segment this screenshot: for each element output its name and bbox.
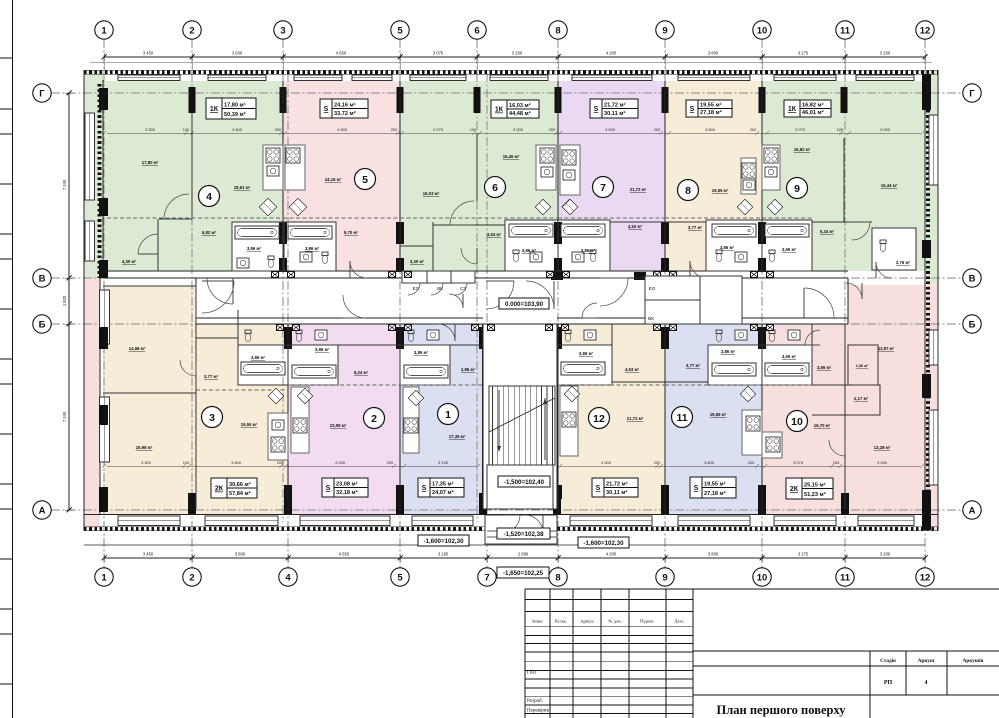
svg-text:3 075: 3 075 [433, 51, 444, 56]
svg-text:11: 11 [840, 572, 851, 583]
svg-text:3,86 м²: 3,86 м² [581, 248, 596, 253]
svg-text:4,64 м²: 4,64 м² [487, 232, 502, 237]
svg-text:3 275: 3 275 [798, 51, 809, 56]
svg-text:3 800: 3 800 [235, 552, 246, 557]
svg-text:3 275: 3 275 [798, 552, 809, 557]
svg-text:3,86 м²: 3,86 м² [579, 351, 594, 356]
svg-text:50,39 м²: 50,39 м² [224, 111, 246, 118]
svg-text:3: 3 [280, 25, 285, 36]
svg-text:9: 9 [794, 183, 800, 195]
svg-text:1 820: 1 820 [62, 295, 67, 306]
svg-text:2: 2 [189, 572, 194, 583]
svg-text:3 600: 3 600 [231, 460, 242, 465]
svg-text:S: S [594, 106, 599, 113]
svg-text:3,30 м²: 3,30 м² [410, 259, 425, 264]
svg-text:8: 8 [555, 572, 560, 583]
svg-text:Г: Г [969, 88, 975, 99]
svg-text:В: В [39, 273, 46, 284]
svg-text:23,08 м²: 23,08 м² [330, 423, 347, 428]
svg-text:200: 200 [391, 127, 398, 132]
svg-text:2 975: 2 975 [433, 127, 443, 132]
svg-text:1К: 1К [210, 106, 219, 113]
svg-text:3 300: 3 300 [141, 460, 152, 465]
svg-text:100: 100 [183, 127, 190, 132]
svg-text:21,72 м²: 21,72 м² [606, 481, 628, 488]
svg-text:11,87 м²: 11,87 м² [878, 346, 895, 351]
svg-text:11: 11 [676, 412, 687, 424]
svg-text:6: 6 [474, 25, 479, 36]
svg-text:3,77 м²: 3,77 м² [686, 363, 701, 368]
svg-text:200: 200 [275, 127, 282, 132]
svg-text:200: 200 [654, 460, 661, 465]
svg-text:2: 2 [189, 25, 194, 36]
svg-text:3: 3 [209, 412, 215, 424]
svg-text:S: S [324, 106, 329, 113]
svg-text:Аркуш: Аркуш [918, 658, 935, 664]
svg-text:16,45 м²: 16,45 м² [503, 154, 520, 159]
svg-text:12: 12 [593, 413, 605, 425]
svg-text:13,28 м²: 13,28 м² [874, 445, 891, 450]
svg-text:3,86 м²: 3,86 м² [414, 350, 429, 355]
svg-text:3,65 м²: 3,65 м² [782, 354, 797, 359]
svg-text:СЗ: СЗ [460, 286, 466, 291]
svg-text:200: 200 [750, 127, 757, 132]
svg-text:12: 12 [920, 25, 931, 36]
svg-text:Стадія: Стадія [880, 658, 896, 664]
svg-text:19,55 м²: 19,55 м² [712, 188, 729, 193]
svg-text:2,17 м²: 2,17 м² [854, 396, 869, 401]
svg-text:3 075: 3 075 [793, 460, 803, 465]
svg-text:17,80 м²: 17,80 м² [142, 160, 159, 165]
svg-text:16,82 м²: 16,82 м² [794, 147, 811, 152]
svg-text:2 880: 2 880 [518, 552, 529, 557]
svg-text:ВК: ВК [648, 316, 654, 321]
svg-text:24,07 м²: 24,07 м² [432, 489, 454, 496]
svg-text:7: 7 [600, 182, 606, 194]
svg-text:9: 9 [662, 25, 667, 36]
svg-text:21,72 м²: 21,72 м² [627, 416, 644, 421]
svg-text:10: 10 [757, 25, 768, 36]
svg-text:3 075: 3 075 [795, 127, 805, 132]
svg-text:5: 5 [362, 174, 368, 186]
svg-text:10: 10 [791, 416, 803, 428]
svg-text:57,84 м²: 57,84 м² [229, 490, 251, 497]
svg-text:1К: 1К [788, 106, 797, 113]
svg-text:4 000: 4 000 [605, 127, 616, 132]
svg-text:3 050: 3 050 [880, 127, 891, 132]
svg-text:S: S [596, 485, 601, 492]
svg-text:3 800: 3 800 [708, 552, 719, 557]
svg-text:2,86 м²: 2,86 м² [461, 367, 476, 372]
svg-text:-1,500=102,40: -1,500=102,40 [504, 479, 545, 486]
svg-text:27,18 м²: 27,18 м² [704, 490, 726, 497]
svg-text:3 000: 3 000 [513, 127, 524, 132]
svg-text:Г: Г [39, 88, 45, 99]
svg-text:14,68 м²: 14,68 м² [129, 346, 146, 351]
svg-text:Аркуш: Аркуш [580, 619, 594, 624]
svg-text:Перевірив: Перевірив [527, 709, 549, 714]
svg-text:Розроб.: Розроб. [527, 699, 543, 704]
svg-text:3 195: 3 195 [438, 552, 449, 557]
svg-text:3 450: 3 450 [143, 51, 154, 56]
svg-text:4 200: 4 200 [606, 552, 617, 557]
svg-text:3,86 м²: 3,86 м² [247, 246, 262, 251]
svg-text:24,16 м²: 24,16 м² [325, 177, 342, 182]
svg-text:200: 200 [748, 460, 755, 465]
svg-text:200: 200 [549, 127, 556, 132]
svg-text:15,98 м²: 15,98 м² [136, 445, 153, 450]
svg-text:4 650: 4 650 [336, 51, 347, 56]
svg-text:9: 9 [662, 572, 667, 583]
svg-text:30,66 м²: 30,66 м² [229, 481, 251, 488]
svg-text:ЕО: ЕО [649, 286, 656, 291]
svg-text:4 650: 4 650 [339, 552, 350, 557]
svg-text:Аркушів: Аркушів [963, 658, 984, 664]
svg-text:-1,600=102,30: -1,600=102,30 [583, 540, 624, 547]
svg-text:4: 4 [285, 572, 291, 583]
svg-text:24,16 м²: 24,16 м² [334, 102, 356, 109]
svg-text:S: S [694, 485, 699, 492]
svg-text:200: 200 [654, 127, 661, 132]
svg-text:16,03 м²: 16,03 м² [423, 191, 440, 196]
svg-text:21,72 м²: 21,72 м² [604, 102, 626, 109]
svg-text:4,53 м²: 4,53 м² [628, 224, 643, 229]
svg-text:3,76 м²: 3,76 м² [896, 260, 911, 265]
svg-text:-1,650=102,25: -1,650=102,25 [503, 570, 544, 577]
svg-text:Б: Б [39, 319, 46, 330]
svg-text:11: 11 [840, 25, 851, 36]
svg-text:ВК: ВК [437, 286, 443, 291]
svg-text:16,03 м²: 16,03 м² [509, 102, 531, 109]
svg-text:30,11 м²: 30,11 м² [604, 110, 625, 117]
svg-text:8: 8 [685, 185, 691, 197]
svg-text:№ док.: № док. [608, 619, 622, 624]
svg-text:3,56 м²: 3,56 м² [817, 365, 832, 370]
svg-text:46,01 м²: 46,01 м² [802, 109, 824, 116]
svg-text:8: 8 [555, 25, 560, 36]
svg-text:4 000: 4 000 [601, 460, 612, 465]
svg-text:44,48 м²: 44,48 м² [509, 110, 531, 117]
svg-text:5,70 м²: 5,70 м² [344, 230, 359, 235]
svg-text:7 340: 7 340 [62, 179, 67, 190]
svg-text:3,77 м²: 3,77 м² [204, 374, 219, 379]
svg-text:3 450: 3 450 [143, 552, 154, 557]
svg-text:А: А [969, 505, 976, 516]
svg-text:4 250: 4 250 [335, 460, 346, 465]
svg-text:3 600: 3 600 [232, 51, 243, 56]
svg-text:30,11 м²: 30,11 м² [606, 489, 627, 496]
svg-text:2К: 2К [790, 486, 799, 493]
svg-text:Зміна: Зміна [532, 619, 543, 624]
svg-text:Підпис: Підпис [640, 619, 654, 624]
svg-text:6: 6 [492, 182, 498, 194]
svg-text:1К: 1К [495, 107, 504, 114]
svg-text:S: S [422, 485, 427, 492]
svg-text:7: 7 [484, 572, 489, 583]
svg-text:3 200: 3 200 [512, 51, 523, 56]
svg-text:4: 4 [925, 680, 928, 686]
svg-text:3 200: 3 200 [880, 51, 891, 56]
svg-text:200: 200 [387, 460, 394, 465]
svg-text:19,55 м²: 19,55 м² [704, 481, 726, 488]
svg-text:4 200: 4 200 [606, 51, 617, 56]
svg-text:3,86 м²: 3,86 м² [251, 355, 266, 360]
svg-text:17,35 м²: 17,35 м² [432, 481, 454, 488]
svg-text:33,72 м²: 33,72 м² [334, 110, 356, 117]
svg-text:4 650: 4 650 [337, 127, 348, 132]
svg-text:51,23 м²: 51,23 м² [804, 491, 826, 498]
svg-text:5,82 м²: 5,82 м² [202, 230, 217, 235]
svg-text:ЕО: ЕО [413, 286, 420, 291]
svg-text:5,34 м²: 5,34 м² [820, 229, 835, 234]
svg-text:3,86 м²: 3,86 м² [315, 347, 330, 352]
svg-text:19,55 м²: 19,55 м² [700, 102, 722, 109]
svg-text:18,61 м²: 18,61 м² [234, 185, 251, 190]
svg-text:Б: Б [969, 319, 976, 330]
svg-text:32,18 м²: 32,18 м² [336, 489, 358, 496]
svg-text:16,44 м²: 16,44 м² [881, 183, 898, 188]
svg-text:3,65 м²: 3,65 м² [782, 247, 797, 252]
svg-text:12: 12 [920, 572, 931, 583]
svg-text:10: 10 [757, 572, 768, 583]
svg-text:7 340: 7 340 [62, 411, 67, 422]
svg-text:3 400: 3 400 [232, 127, 243, 132]
svg-text:А: А [39, 505, 46, 516]
svg-text:Кільк.: Кільк. [555, 619, 567, 624]
svg-text:4,30 м²: 4,30 м² [122, 259, 137, 264]
svg-text:16,82 м²: 16,82 м² [802, 102, 824, 109]
svg-text:2К: 2К [215, 486, 224, 493]
svg-text:3,86 м²: 3,86 м² [721, 349, 736, 354]
svg-text:19,55 м²: 19,55 м² [710, 412, 727, 417]
svg-text:3 800: 3 800 [708, 51, 719, 56]
svg-text:ГАП: ГАП [527, 671, 537, 676]
svg-text:-1,600=102,30: -1,600=102,30 [423, 538, 464, 545]
svg-text:0.000=103,90: 0.000=103,90 [505, 301, 544, 308]
svg-text:План першого поверху: План першого поверху [717, 703, 847, 717]
svg-text:1: 1 [101, 25, 107, 36]
svg-text:27,18 м²: 27,18 м² [700, 109, 722, 116]
svg-text:3 600: 3 600 [704, 460, 715, 465]
svg-text:21,72 м²: 21,72 м² [630, 187, 647, 192]
svg-text:4,53 м²: 4,53 м² [625, 367, 640, 372]
svg-text:В: В [969, 273, 976, 284]
svg-text:17,35 м²: 17,35 м² [449, 434, 466, 439]
svg-text:3,86 м²: 3,86 м² [720, 245, 735, 250]
svg-text:16,70 м²: 16,70 м² [814, 423, 831, 428]
svg-text:1: 1 [101, 572, 107, 583]
svg-text:-1,520=102,38: -1,520=102,38 [503, 531, 544, 538]
svg-text:3,77 м²: 3,77 м² [688, 225, 703, 230]
svg-text:3 600: 3 600 [705, 127, 716, 132]
svg-text:5: 5 [397, 25, 403, 36]
svg-text:3 195: 3 195 [438, 460, 448, 465]
svg-text:S: S [690, 106, 695, 113]
svg-text:1,56 м²: 1,56 м² [856, 364, 869, 368]
svg-text:100: 100 [183, 460, 190, 465]
svg-text:3,86 м²: 3,86 м² [522, 248, 537, 253]
svg-text:2: 2 [371, 413, 377, 425]
svg-text:РП: РП [884, 680, 893, 686]
svg-text:5: 5 [397, 572, 403, 583]
svg-text:3 050: 3 050 [877, 460, 888, 465]
svg-text:4: 4 [206, 191, 212, 203]
svg-text:17,80 м²: 17,80 м² [224, 102, 246, 109]
svg-text:1: 1 [445, 409, 451, 421]
svg-text:Дата: Дата [674, 619, 683, 624]
svg-text:23,08 м²: 23,08 м² [336, 481, 358, 488]
svg-text:19,55 м²: 19,55 м² [241, 422, 258, 427]
svg-text:5,24 м²: 5,24 м² [354, 370, 369, 375]
svg-text:25,15 м²: 25,15 м² [804, 482, 826, 489]
svg-text:3,86 м²: 3,86 м² [305, 246, 320, 251]
svg-text:3 200: 3 200 [880, 552, 891, 557]
svg-text:3 300: 3 300 [145, 127, 156, 132]
svg-text:S: S [326, 485, 331, 492]
